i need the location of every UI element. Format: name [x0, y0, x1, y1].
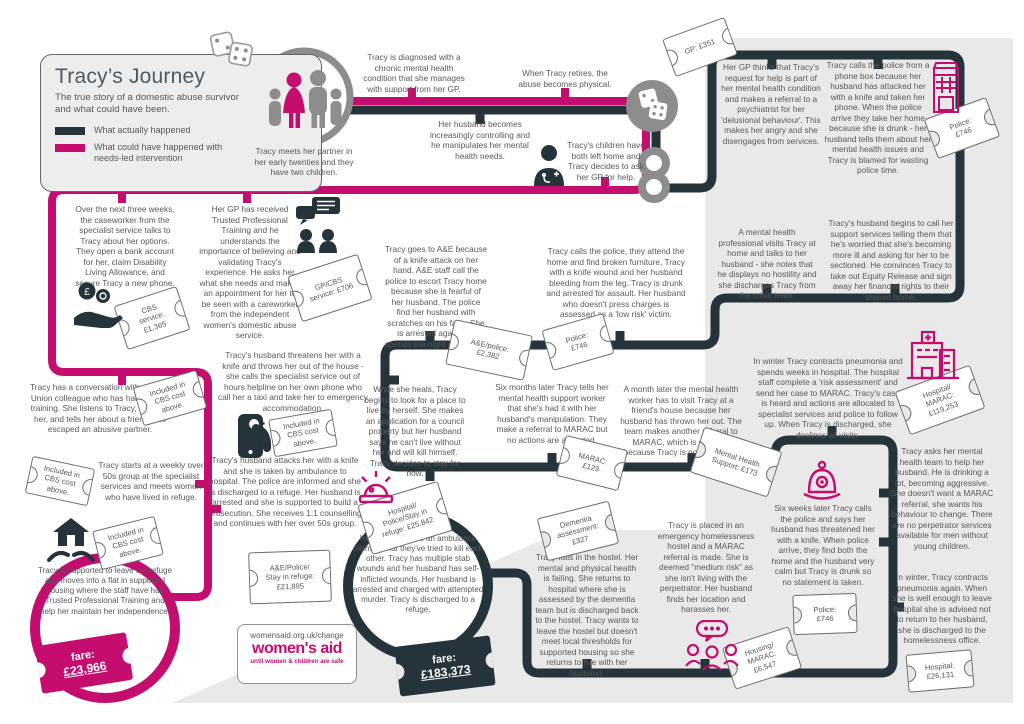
- womens-aid-tagline: until women & children are safe: [238, 658, 356, 665]
- doctor-icon: [532, 144, 566, 186]
- story-meet: Tracy meets her partner in her early twe…: [250, 146, 358, 178]
- helpline-phone-icon: [236, 412, 280, 460]
- police-helmet-icon: [802, 460, 842, 506]
- legend-label: What actually happened: [94, 125, 244, 136]
- legend-swatch-pink: [55, 144, 85, 152]
- page-subtitle: The true story of a domestic abuse survi…: [55, 92, 245, 117]
- story-heals: While she heals, Tracy begins to look fo…: [364, 384, 466, 479]
- cost-ticket-hospital: Hospital: £26,131: [905, 649, 974, 693]
- story-gp-thinks: Her GP thinks that Tracy's request for h…: [718, 62, 824, 146]
- womens-aid-url: womensaid.org.uk/change: [238, 631, 356, 640]
- dice-icon: [626, 80, 678, 132]
- story-gp-trained: Her GP has received Trusted Professional…: [199, 204, 301, 341]
- story-emergency-hostel: Tracy is placed in an emergency homeless…: [654, 520, 758, 615]
- cost-ticket-ae-police-refuge: A&E/Police/ Stay in refuge: £21,895: [248, 550, 332, 605]
- title-dice-icon: [206, 26, 260, 82]
- story-six-weeks: Six weeks later Tracy calls the police a…: [770, 503, 876, 587]
- story-husband-calls: Tracy's husband begins to call her suppo…: [826, 218, 956, 302]
- story-caseworker: Over the next three weeks, the caseworke…: [72, 204, 178, 288]
- family-icon: [262, 58, 346, 136]
- tracys-journey-infographic: { "colors": {"dark":"#25333b","pink":"#c…: [0, 0, 1024, 724]
- story-winter-pneumonia: In winter Tracy contracts pneumonia and …: [752, 356, 904, 440]
- siren-alarm-icon: [356, 468, 396, 506]
- story-controlling: Her husband becomes increasingly control…: [426, 119, 534, 161]
- story-falls-hostel: Tracy falls in the hostel. Her mental an…: [534, 552, 640, 678]
- story-winter-again: In winter, Tracy contracts pneumonia aga…: [890, 572, 994, 646]
- legend-label: What could have happened with needs-led …: [94, 142, 244, 165]
- womens-aid-logo-box: womensaid.org.uk/change women's aid unti…: [237, 624, 357, 684]
- story-threatens: Tracy's husband threatens her with a kni…: [218, 350, 368, 413]
- people-meeting-icon: [684, 620, 740, 672]
- phone-box-icon: [930, 60, 962, 114]
- money-hand-icon: £: [72, 280, 124, 328]
- story-six-months: Six months later Tracy tells her mental …: [492, 382, 612, 445]
- story-over-50s: Tracy starts at a weekly over 50s group …: [92, 460, 210, 502]
- cost-ticket-police-bottom: Police: £746: [792, 593, 857, 635]
- story-phone-box: Tracy calls the police from a phone box …: [824, 60, 932, 176]
- story-diagnosed: Tracy is diagnosed with a chronic mental…: [360, 52, 468, 94]
- hospital-building-icon: [904, 330, 962, 384]
- story-attacks: Tracy's husband attacks her with a knife…: [208, 455, 362, 529]
- training-chat-icon: [296, 197, 340, 253]
- story-retires: When Tracy retires, the abuse becomes ph…: [514, 68, 616, 89]
- house-hands-icon: [46, 516, 96, 566]
- story-mh-help: Tracy asks her mental health team to hel…: [890, 446, 994, 551]
- womens-aid-logo: women's aid: [238, 640, 356, 658]
- story-supported-leave: Tracy is supported to leave the refuge a…: [38, 566, 172, 617]
- legend-swatch-dark: [55, 127, 85, 135]
- story-mh-professional: A mental health professional visits Trac…: [716, 227, 818, 301]
- story-children-left: Tracy's children have both left home and…: [564, 140, 648, 182]
- svg-text:£: £: [84, 287, 90, 298]
- story-police-attend: Tracy calls the police, they attend the …: [546, 246, 686, 320]
